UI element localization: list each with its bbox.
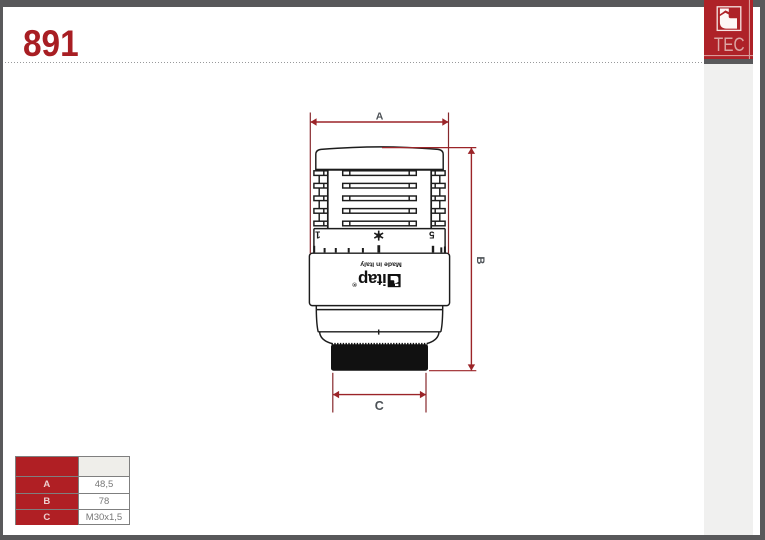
- svg-text:B: B: [474, 256, 486, 264]
- svg-text:itap: itap: [358, 270, 386, 289]
- svg-text:Made in Italy: Made in Italy: [360, 261, 402, 268]
- svg-text:C: C: [375, 399, 384, 413]
- svg-text:5: 5: [429, 228, 435, 239]
- svg-text:1: 1: [315, 229, 321, 240]
- svg-text:A: A: [376, 110, 384, 122]
- svg-text:®: ®: [352, 281, 357, 288]
